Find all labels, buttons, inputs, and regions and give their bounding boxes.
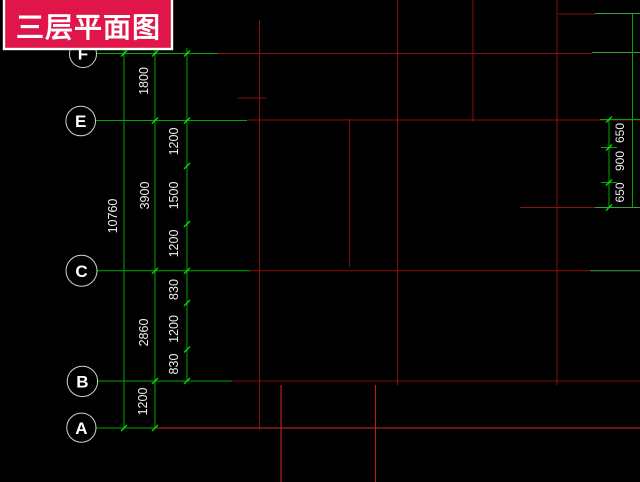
svg-text:2860: 2860 (137, 319, 151, 347)
svg-text:1200: 1200 (167, 128, 181, 156)
svg-text:B: B (76, 373, 88, 392)
svg-text:1800: 1800 (137, 67, 151, 95)
svg-text:1200: 1200 (167, 230, 181, 258)
svg-text:830: 830 (167, 354, 181, 375)
svg-text:10760: 10760 (106, 199, 120, 234)
svg-text:E: E (75, 112, 86, 131)
svg-text:3900: 3900 (138, 182, 152, 210)
svg-text:1200: 1200 (167, 315, 181, 343)
svg-text:900: 900 (613, 151, 627, 171)
svg-text:三层平面图: 三层平面图 (16, 12, 161, 43)
svg-text:650: 650 (613, 182, 627, 202)
svg-text:650: 650 (613, 123, 627, 143)
svg-text:C: C (75, 262, 87, 281)
svg-text:1200: 1200 (136, 388, 150, 416)
svg-text:830: 830 (167, 279, 181, 300)
svg-text:1500: 1500 (167, 182, 181, 210)
svg-text:A: A (75, 419, 87, 438)
